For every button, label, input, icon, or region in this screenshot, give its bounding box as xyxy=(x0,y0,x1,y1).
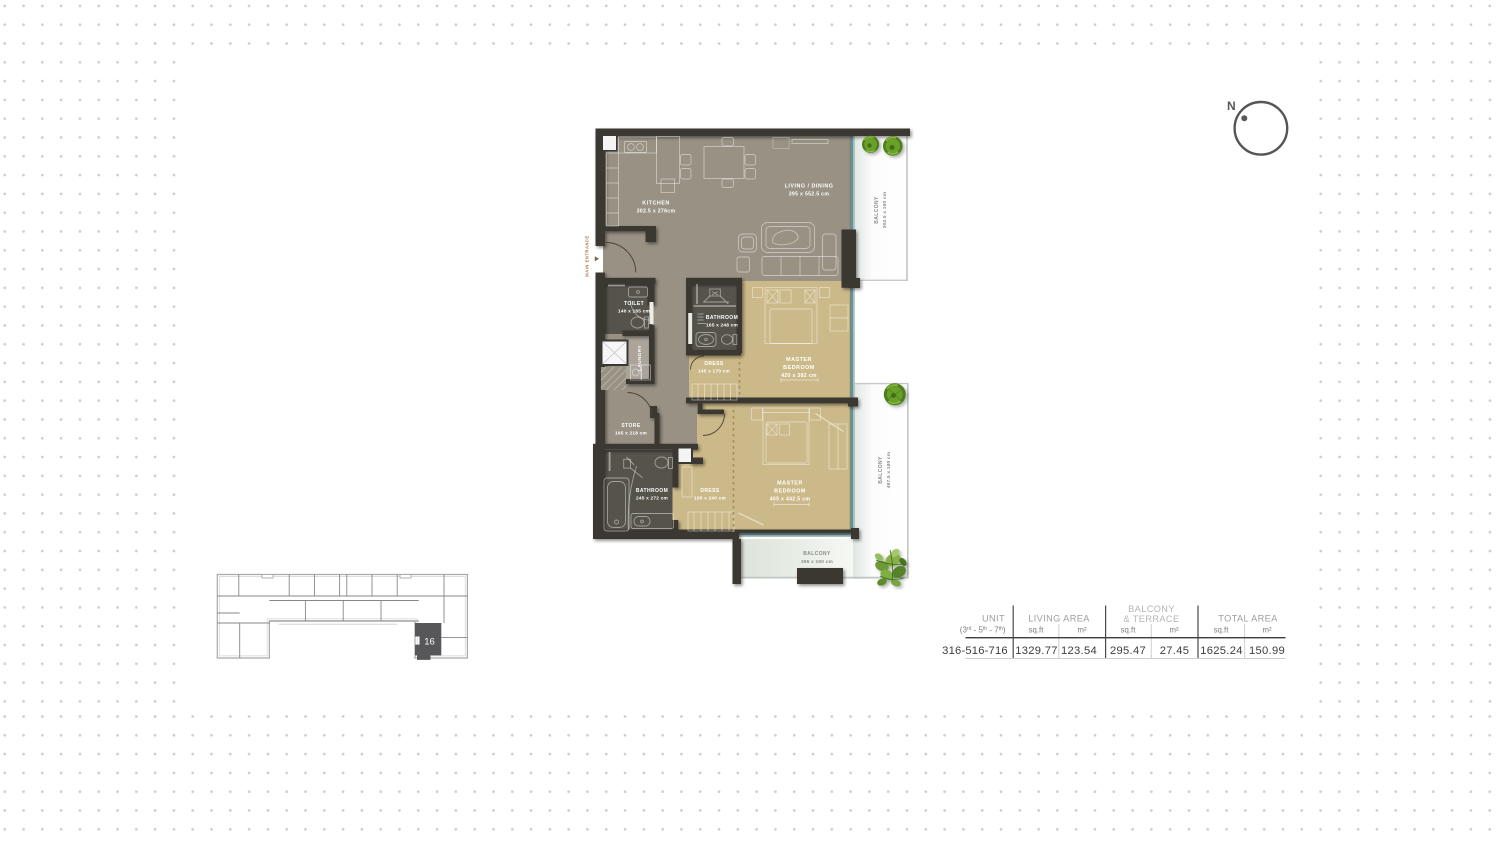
svg-text:LIVING / DINING: LIVING / DINING xyxy=(785,184,834,190)
svg-text:497.5 x 180 cm: 497.5 x 180 cm xyxy=(886,452,892,488)
svg-text:420 x 382 cm: 420 x 382 cm xyxy=(781,373,817,379)
svg-text:27.45: 27.45 xyxy=(1160,645,1190,657)
svg-text:195 x 240 cm: 195 x 240 cm xyxy=(694,496,726,502)
svg-text:N: N xyxy=(1227,99,1236,113)
svg-text:1329.77: 1329.77 xyxy=(1015,645,1058,657)
svg-text:sq.ft: sq.ft xyxy=(1214,626,1230,635)
svg-text:DRESS: DRESS xyxy=(700,488,719,494)
svg-text:395 x 150 cm: 395 x 150 cm xyxy=(801,559,833,565)
svg-text:145 x 170 cm: 145 x 170 cm xyxy=(698,369,730,375)
svg-text:123.54: 123.54 xyxy=(1061,645,1097,657)
svg-text:BEDROOM: BEDROOM xyxy=(783,365,815,371)
svg-text:BALCONY: BALCONY xyxy=(874,196,880,224)
svg-text:140 x 185 cm: 140 x 185 cm xyxy=(618,309,650,315)
svg-text:BATHROOM: BATHROOM xyxy=(706,315,738,321)
svg-text:150.99: 150.99 xyxy=(1249,645,1285,657)
svg-text:195 x 218 cm: 195 x 218 cm xyxy=(615,431,647,437)
svg-text:DRESS: DRESS xyxy=(704,361,723,367)
svg-text:BALCONY: BALCONY xyxy=(803,551,831,557)
svg-text:BALCONY: BALCONY xyxy=(878,456,884,484)
svg-text:1625.24: 1625.24 xyxy=(1200,645,1243,657)
svg-text:16: 16 xyxy=(424,637,435,648)
svg-text:302.5 x 276cm: 302.5 x 276cm xyxy=(637,209,676,215)
svg-text:295.47: 295.47 xyxy=(1110,645,1146,657)
svg-text:MAIN ENTRANCE: MAIN ENTRANCE xyxy=(585,235,590,277)
svg-text:LIVING AREA: LIVING AREA xyxy=(1028,614,1090,624)
svg-text:m²: m² xyxy=(1169,626,1178,635)
svg-text:405 x 442.5 cm: 405 x 442.5 cm xyxy=(770,497,811,503)
svg-text:395 x 552.5 cm: 395 x 552.5 cm xyxy=(789,192,830,198)
svg-text:UNIT: UNIT xyxy=(982,614,1005,624)
svg-text:KITCHEN: KITCHEN xyxy=(642,201,669,207)
svg-text:302.5 x 160 cm: 302.5 x 160 cm xyxy=(882,192,888,228)
svg-text:BEDROOM: BEDROOM xyxy=(774,489,806,495)
svg-text:& TERRACE: & TERRACE xyxy=(1123,614,1179,624)
svg-text:245 x 272 cm: 245 x 272 cm xyxy=(636,496,668,502)
svg-text:m²: m² xyxy=(1077,626,1086,635)
svg-text:LAUNDRY: LAUNDRY xyxy=(637,345,643,371)
svg-text:(3rd - 5th - 7th): (3rd - 5th - 7th) xyxy=(960,626,1006,635)
svg-text:STORE: STORE xyxy=(621,423,640,429)
svg-text:BATHROOM: BATHROOM xyxy=(636,488,668,494)
svg-text:165 x 248 cm: 165 x 248 cm xyxy=(706,323,738,329)
svg-text:sq.ft: sq.ft xyxy=(1121,626,1137,635)
svg-text:TOILET: TOILET xyxy=(624,301,644,307)
svg-text:m²: m² xyxy=(1262,626,1271,635)
svg-text:TOTAL AREA: TOTAL AREA xyxy=(1218,614,1278,624)
svg-text:MASTER: MASTER xyxy=(777,481,803,487)
svg-text:BALCONY: BALCONY xyxy=(1128,604,1175,614)
svg-text:MASTER: MASTER xyxy=(786,357,812,363)
svg-text:316-516-716: 316-516-716 xyxy=(942,645,1008,657)
svg-text:sq.ft: sq.ft xyxy=(1029,626,1045,635)
